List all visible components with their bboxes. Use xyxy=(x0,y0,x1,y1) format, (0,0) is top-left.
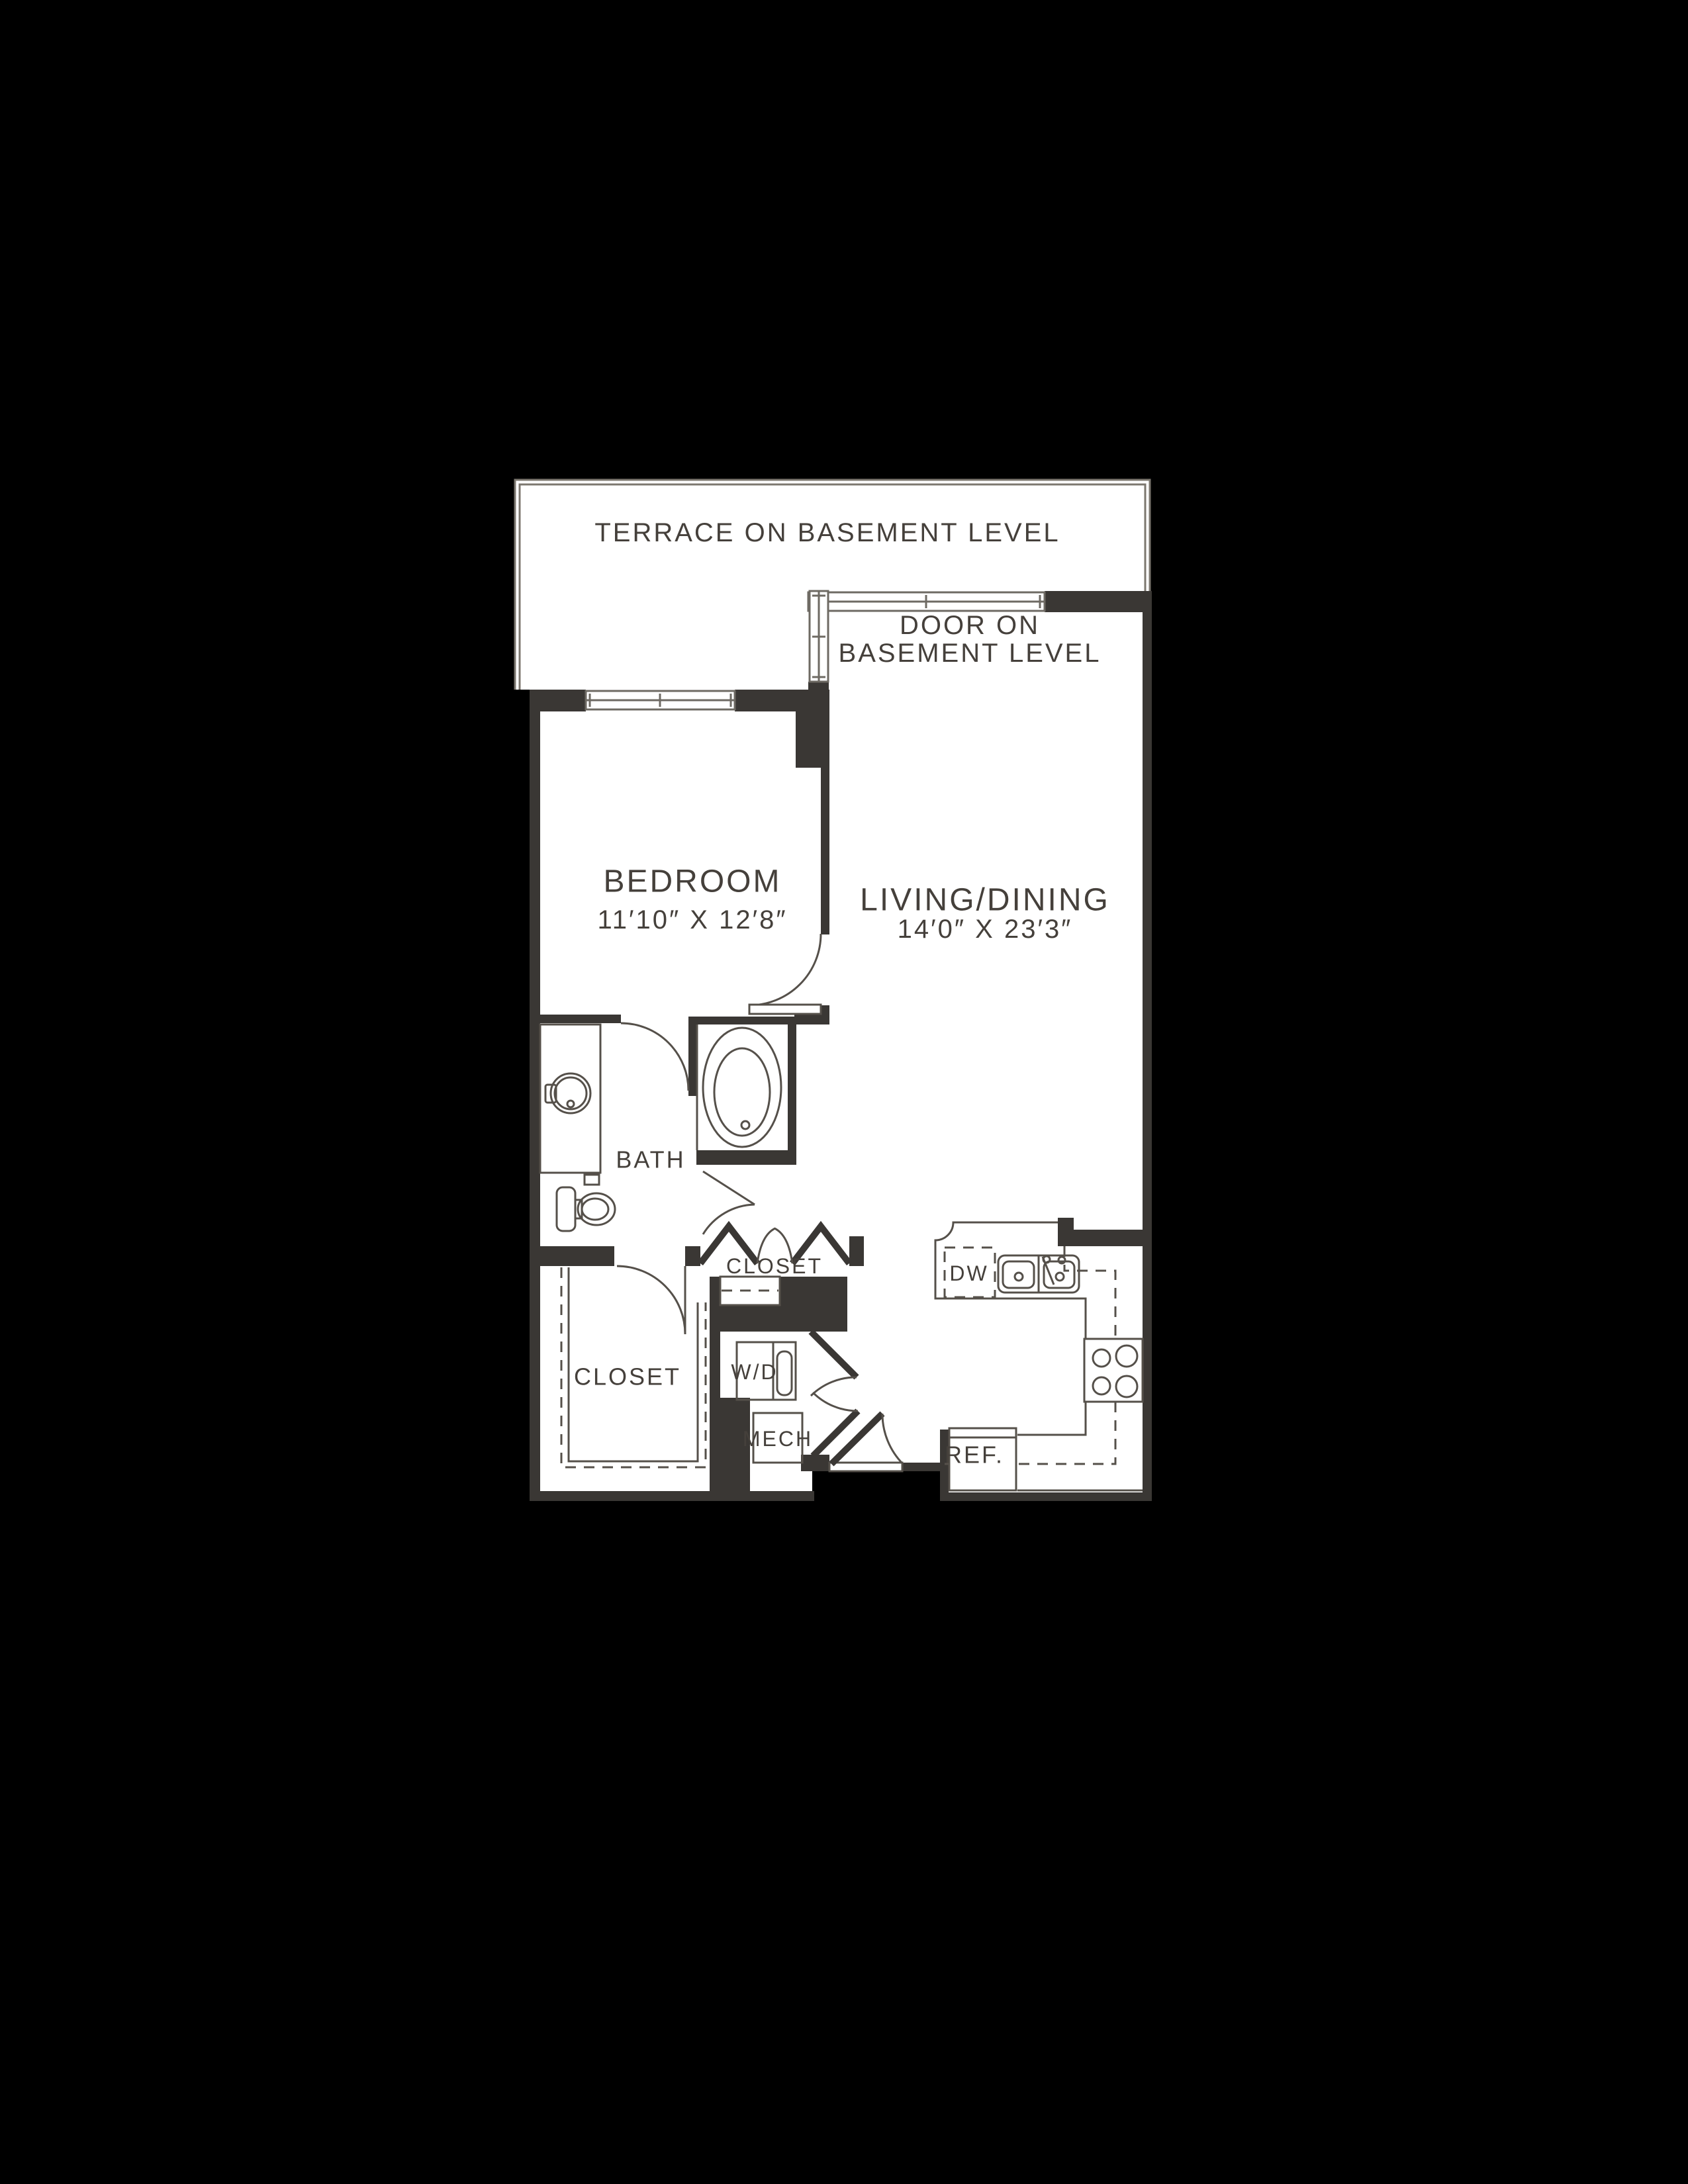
hall-closet-label: CLOSET xyxy=(726,1254,823,1278)
stove xyxy=(1084,1339,1143,1402)
dishwasher-label: DW xyxy=(949,1261,988,1285)
bath-label: BATH xyxy=(616,1146,685,1173)
walkin-closet-label: CLOSET xyxy=(574,1363,681,1390)
bedroom-label: BEDROOM xyxy=(603,864,781,899)
living-corner-window-horizontal xyxy=(808,592,1045,611)
floor-plan-page: TERRACE ON BASEMENT LEVEL DOOR ON BASEME… xyxy=(0,0,1688,2184)
refrigerator-label: REF. xyxy=(945,1441,1004,1469)
hall-closet-shelf xyxy=(720,1277,780,1305)
basement-door-label-line1: DOOR ON xyxy=(900,611,1040,640)
floor-plan-canvas: TERRACE ON BASEMENT LEVEL DOOR ON BASEME… xyxy=(0,0,1688,2184)
bedroom-door-leaf xyxy=(749,1005,821,1014)
entry-threshold xyxy=(829,1463,902,1471)
living-dining-dimensions: 14′0″ X 23′3″ xyxy=(898,915,1073,944)
living-dining-label: LIVING/DINING xyxy=(860,883,1110,918)
bedroom-window xyxy=(586,691,735,709)
bedroom-dimensions: 11′10″ X 12′8″ xyxy=(598,905,788,934)
washer-dryer-label: W/D xyxy=(731,1360,778,1384)
mechanical-label: MECH xyxy=(743,1427,813,1451)
living-corner-window-vertical xyxy=(810,591,828,682)
terrace-label: TERRACE ON BASEMENT LEVEL xyxy=(594,518,1060,547)
basement-door-label-line2: BASEMENT LEVEL xyxy=(839,639,1102,668)
